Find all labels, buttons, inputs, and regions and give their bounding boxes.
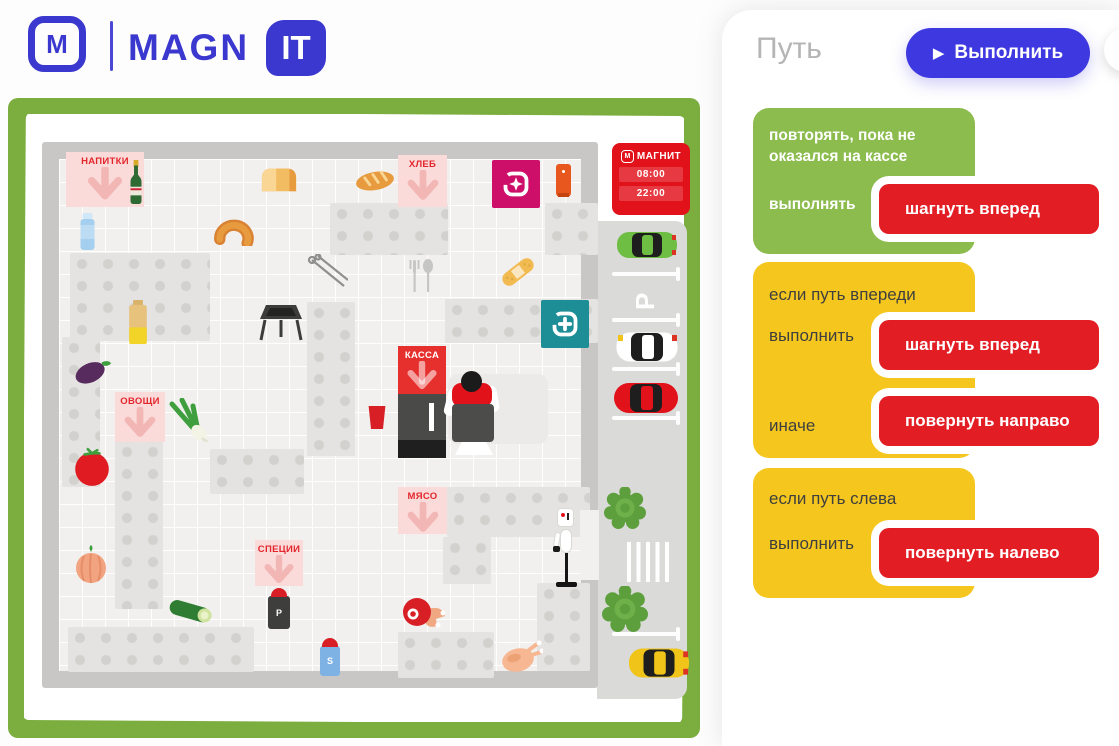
crosswalk — [627, 542, 671, 582]
cosmetic-tube-icon — [556, 164, 571, 197]
shaker-cap — [322, 638, 338, 647]
eggplant-icon — [72, 352, 114, 388]
arrow-down-icon — [262, 555, 296, 585]
arrow-down-icon — [85, 167, 125, 201]
else-label: иначе — [769, 416, 815, 436]
robot-head — [557, 508, 574, 527]
section-tile-checkout: КАССА — [398, 346, 446, 394]
parking-line — [612, 632, 680, 636]
robot-body — [560, 529, 572, 553]
brand-it-badge: IT — [266, 20, 326, 76]
shelf-block — [443, 537, 491, 584]
logo-divider — [110, 21, 113, 71]
if-condition: если путь слева — [769, 488, 969, 511]
section-tile-meat: МЯСО — [398, 487, 447, 534]
shelf-block — [307, 302, 355, 456]
pepper-shaker-icon: P — [268, 596, 290, 629]
bread-loaf-icon — [260, 162, 298, 194]
white-car-icon — [615, 327, 679, 367]
brand-text: MAGN — [128, 27, 249, 69]
robot-hand — [553, 546, 560, 552]
robot-figure — [552, 508, 580, 590]
arrow-down-icon — [405, 170, 441, 202]
command-block-step-forward[interactable]: шагнуть вперед — [879, 184, 1099, 234]
run-button-label: Выполнить — [954, 42, 1063, 64]
section-label: КАССА — [405, 350, 439, 361]
water-bottle-icon — [78, 213, 97, 251]
arrow-down-icon — [405, 361, 439, 391]
path-panel: Путь ▶ Выполнить повторять, пока не оказ… — [722, 10, 1119, 746]
baguette-icon — [354, 166, 396, 196]
cucumber-icon — [166, 594, 216, 630]
checkout-register-base — [398, 440, 446, 458]
panel-title: Путь — [756, 32, 822, 66]
magnit-cosmetic-logo — [492, 160, 540, 208]
shelf-block — [398, 632, 494, 678]
parking-line — [612, 367, 680, 371]
shelf-block — [210, 449, 304, 494]
shelf-block — [330, 203, 448, 255]
robot-base — [556, 582, 577, 587]
arrow-down-icon — [405, 502, 441, 534]
section-label: МЯСО — [408, 491, 438, 502]
shelf-block — [115, 441, 163, 609]
repeat-condition: повторять, пока не оказался на кассе — [769, 126, 957, 168]
section-label: ОВОЩИ — [120, 396, 159, 407]
robot-eye — [561, 513, 565, 517]
magnit-sign-logo-icon: М — [621, 150, 634, 163]
grill-icon — [258, 300, 304, 342]
magnit-logo-icon: М — [28, 16, 86, 72]
open-time: 08:00 — [619, 167, 683, 182]
parking-line — [612, 272, 680, 276]
checkout-register — [398, 394, 446, 440]
edge-circle-button[interactable] — [1104, 28, 1119, 72]
shaker-cap — [271, 588, 287, 597]
command-block-step-forward[interactable]: шагнуть вперед — [879, 320, 1099, 370]
command-block-turn-left[interactable]: повернуть налево — [879, 528, 1099, 578]
section-label: ХЛЕБ — [409, 159, 436, 170]
section-label: СПЕЦИИ — [258, 544, 300, 555]
section-tile-bread: ХЛЕБ — [398, 155, 447, 207]
shelf-block — [545, 203, 598, 255]
command-slot: повернуть направо — [871, 388, 1107, 454]
tree-icon — [604, 487, 646, 529]
salt-shaker-icon: S — [320, 646, 340, 676]
yellow-car-icon — [628, 643, 690, 683]
command-slot: шагнуть вперед — [871, 312, 1107, 378]
ham-icon — [400, 590, 446, 632]
magnit-pharmacy-logo — [541, 300, 589, 348]
tomato-icon — [71, 447, 113, 487]
oil-bottle-icon — [127, 300, 149, 345]
play-icon: ▶ — [933, 44, 945, 62]
skewers-icon — [306, 254, 348, 292]
tree-icon — [602, 586, 648, 632]
parking-letter: P — [630, 280, 660, 310]
leek-icon — [166, 398, 212, 442]
cutlery-silhouette-icon — [408, 258, 436, 294]
do-label: выполнять — [769, 196, 856, 214]
section-tile-spices: СПЕЦИИ — [255, 540, 303, 586]
page: М MAGN IT P М МАГНИТ 08:00 22:00 — [0, 0, 1119, 746]
robot-pole — [565, 553, 568, 583]
section-label: НАПИТКИ — [81, 156, 129, 167]
do-label: выполнить — [769, 326, 854, 346]
chicken-icon — [499, 638, 543, 676]
cashier-bag — [452, 404, 494, 442]
onion-icon — [72, 545, 110, 585]
magnit-sign-brand: МАГНИТ — [637, 151, 681, 162]
command-slot: шагнуть вперед — [871, 176, 1107, 242]
command-slot: повернуть налево — [871, 520, 1107, 586]
shelf-block — [68, 627, 254, 672]
logo-letter: М — [46, 29, 68, 60]
close-time: 22:00 — [619, 186, 683, 201]
magnit-sign: М МАГНИТ 08:00 22:00 — [612, 143, 690, 215]
section-tile-vegetables: ОВОЩИ — [115, 392, 165, 442]
store-entrance — [580, 510, 599, 580]
champagne-icon — [124, 160, 148, 204]
red-car-icon — [613, 377, 679, 419]
command-block-turn-right[interactable]: повернуть направо — [879, 396, 1099, 446]
croissant-icon — [212, 212, 254, 246]
green-car-icon — [616, 227, 678, 263]
salt-letter: S — [327, 656, 333, 666]
run-button[interactable]: ▶ Выполнить — [906, 28, 1090, 78]
shelf-block — [537, 583, 590, 671]
cashier-head — [461, 371, 482, 392]
if-condition: если путь впереди — [769, 284, 969, 307]
arrow-down-icon — [122, 407, 158, 439]
pepper-letter: P — [276, 608, 282, 618]
parking-line — [612, 318, 680, 322]
robot-visor — [567, 513, 569, 520]
do-label: выполнить — [769, 534, 854, 554]
